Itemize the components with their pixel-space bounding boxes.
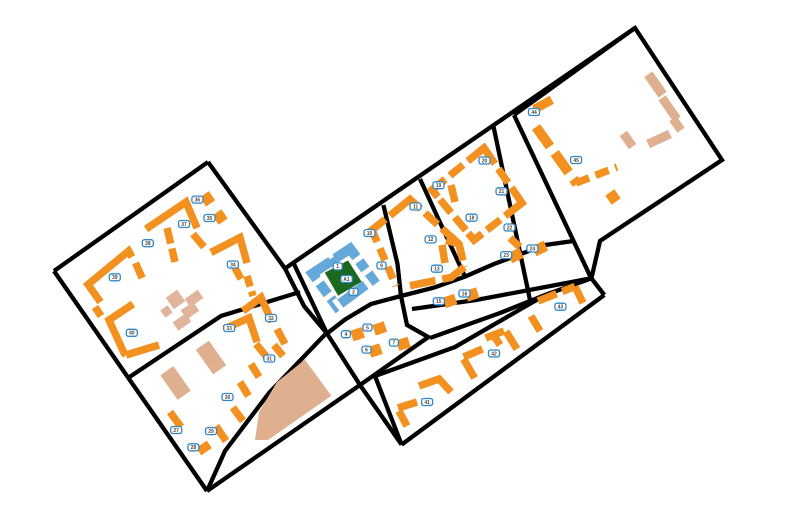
svg-text:34: 34 — [230, 262, 236, 268]
svg-text:35: 35 — [207, 216, 213, 222]
svg-text:13: 13 — [434, 267, 440, 273]
svg-text:32: 32 — [268, 316, 274, 322]
svg-text:30: 30 — [225, 395, 231, 401]
svg-text:18: 18 — [469, 216, 475, 222]
svg-text:45: 45 — [573, 158, 579, 164]
svg-text:7: 7 — [393, 340, 396, 346]
svg-text:20: 20 — [482, 158, 488, 164]
svg-text:29: 29 — [208, 429, 214, 435]
svg-text:31: 31 — [267, 356, 273, 362]
svg-text:12: 12 — [428, 237, 434, 243]
svg-text:21: 21 — [499, 189, 505, 195]
svg-text:2: 2 — [352, 290, 355, 296]
svg-text:22: 22 — [507, 225, 513, 231]
svg-text:44: 44 — [531, 110, 537, 116]
svg-text:16: 16 — [462, 291, 468, 297]
svg-text:27: 27 — [173, 428, 179, 434]
svg-text:38: 38 — [145, 241, 151, 247]
svg-text:1: 1 — [336, 264, 339, 270]
svg-text:A1: A1 — [343, 277, 350, 283]
svg-text:41: 41 — [424, 400, 430, 406]
svg-text:28: 28 — [191, 445, 197, 451]
svg-text:33: 33 — [226, 326, 232, 332]
svg-text:36: 36 — [195, 197, 201, 203]
svg-text:39: 39 — [112, 275, 118, 281]
svg-text:4: 4 — [345, 332, 348, 338]
svg-text:11: 11 — [413, 204, 419, 210]
svg-text:9: 9 — [380, 263, 383, 269]
svg-text:24: 24 — [530, 246, 536, 252]
svg-text:10: 10 — [367, 231, 373, 237]
svg-text:40: 40 — [129, 331, 135, 337]
svg-text:43: 43 — [558, 305, 564, 311]
svg-text:15: 15 — [436, 299, 442, 305]
svg-text:19: 19 — [436, 183, 442, 189]
svg-text:5: 5 — [366, 325, 369, 331]
svg-text:6: 6 — [365, 347, 368, 353]
svg-text:42: 42 — [491, 351, 497, 357]
svg-text:37: 37 — [181, 222, 187, 228]
svg-text:23: 23 — [503, 253, 509, 259]
